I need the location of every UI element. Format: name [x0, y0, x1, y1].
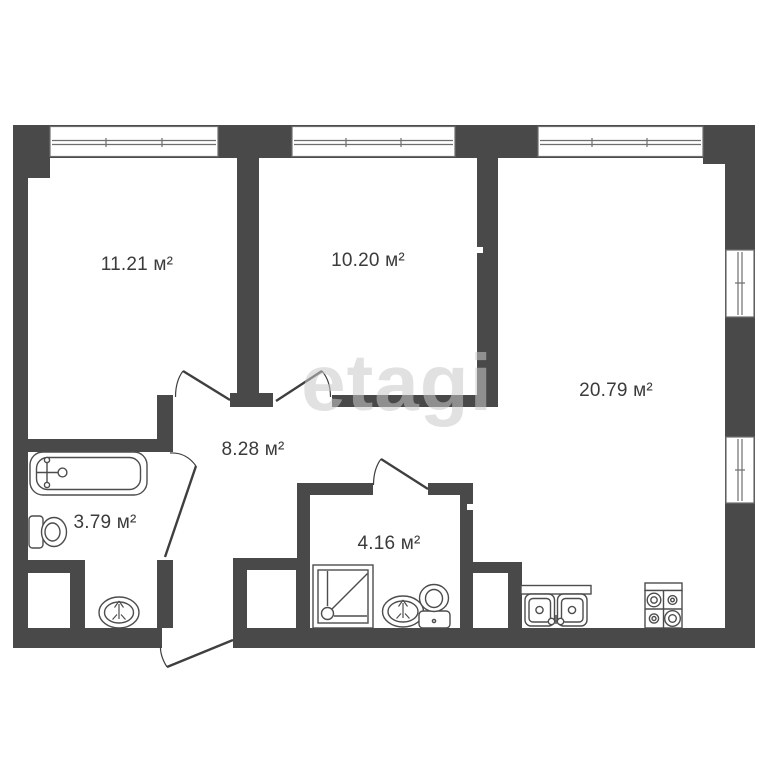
- wall-bottom-left: [13, 628, 162, 648]
- wall-bathroom-niche-right: [70, 573, 85, 628]
- ventilation-shaft-hall-inner: [247, 570, 296, 628]
- wall-between-rooms-1-2: [237, 158, 259, 393]
- ventilation-shaft-kitchen-top: [460, 562, 522, 573]
- room-area-label-top-left: 11.21 м²: [101, 254, 173, 276]
- door-room-top-left: [176, 371, 231, 400]
- wall-corner-top-right: [703, 125, 755, 164]
- stove-icon: [645, 583, 682, 628]
- kitchen-sink-icon: [521, 586, 591, 627]
- door-entrance: [160, 640, 233, 667]
- shower-room-sink-icon: [383, 596, 424, 627]
- bathroom-sink-icon: [99, 597, 139, 628]
- floor-plan: 11.21 м² 10.20 м² 20.79 м² 8.28 м² 3.79 …: [0, 0, 768, 768]
- wall-left: [13, 125, 28, 648]
- shower-tray-icon: [313, 565, 373, 628]
- window-right-1: [726, 250, 754, 317]
- shower-room-toilet-icon: [419, 585, 450, 629]
- watermark-etagi: etagi: [301, 337, 493, 429]
- wall-shower-room-left: [297, 483, 310, 628]
- bathtub-icon: [30, 452, 147, 495]
- wall-bathroom-top: [25, 439, 160, 452]
- room-area-label-hallway: 8.28 м²: [221, 439, 284, 461]
- wall-right: [725, 125, 755, 648]
- room-area-label-right: 20.79 м²: [579, 380, 653, 402]
- ventilation-shaft-kitchen-right: [508, 573, 522, 628]
- window-top-3: [538, 127, 703, 157]
- room-area-label-top-middle: 10.20 м²: [331, 250, 405, 272]
- wall-notch-2: [467, 504, 473, 510]
- window-top-1: [50, 127, 218, 157]
- fixtures: [29, 452, 682, 628]
- wall-door-pier: [230, 393, 273, 407]
- wall-bathroom-right-lower: [157, 560, 173, 628]
- window-right-2: [726, 437, 754, 503]
- wall-corner-top-left: [13, 125, 50, 178]
- window-top-2: [292, 127, 455, 157]
- wall-bottom-right: [233, 628, 755, 648]
- door-shower-room: [374, 459, 429, 489]
- wall-notch-1: [477, 247, 483, 253]
- toilet-icon: [29, 516, 67, 548]
- door-bathroom: [165, 453, 196, 557]
- room-area-label-bathroom: 3.79 м²: [73, 512, 136, 534]
- room-area-label-shower-room: 4.16 м²: [357, 533, 420, 555]
- wall-shower-room-top-left: [297, 483, 373, 495]
- wall-bathroom-niche-top: [28, 560, 85, 573]
